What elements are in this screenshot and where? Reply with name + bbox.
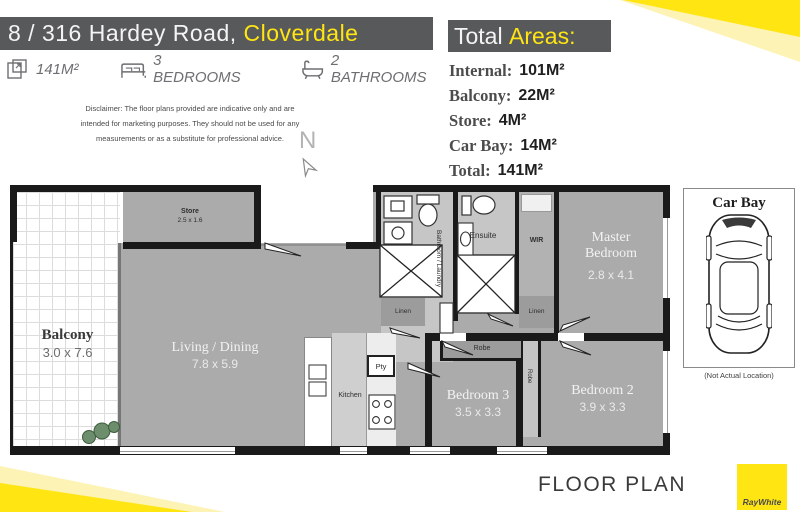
master-name: Master Bedroom: [568, 230, 654, 262]
area-label: Total:: [449, 161, 491, 181]
plan-fixtures: [10, 185, 682, 467]
bed2-dims: 3.9 x 3.3: [550, 400, 655, 414]
wir-name: WIR: [519, 237, 554, 244]
disclaimer-line-2: intended for marketing purposes. They sh…: [40, 116, 340, 131]
area-value: 141M²: [498, 162, 543, 180]
disclaimer-line-1: Disclaimer: The floor plans provided are…: [40, 101, 340, 116]
living-name: Living / Dining: [160, 340, 270, 356]
page-title: 8 / 316 Hardey Road, Cloverdale: [0, 17, 433, 50]
area-value: 101M²: [519, 62, 564, 80]
bed3-name: Bedroom 3: [433, 388, 523, 404]
kitchen-name: Kitchen: [335, 392, 365, 399]
washer-icon: [384, 196, 412, 244]
balcony-trees: [83, 422, 120, 444]
living-dims: 7.8 x 5.9: [160, 357, 270, 371]
bathroom-door: [408, 363, 440, 377]
shower-bathroom: [380, 245, 442, 297]
area-value: 22M²: [518, 87, 554, 105]
linen-door: [390, 328, 420, 338]
total-areas-list: Internal: 101M² Balcony: 22M² Store: 4M²…: [449, 58, 669, 183]
total-areas-title: Total Areas:: [448, 20, 611, 52]
bed2-name: Bedroom 2: [550, 383, 655, 399]
sink-icon: [309, 365, 326, 396]
feature-bathrooms: 2 BATHROOMS: [300, 52, 436, 86]
floor-plan-flyer: 8 / 316 Hardey Road, Cloverdale 141M² 3 …: [0, 0, 800, 512]
floor-plan: Robe Robe Pty: [10, 185, 682, 467]
store-name: Store: [150, 208, 230, 215]
raywhite-logo-text: RayWhite: [743, 497, 782, 510]
stove-icon: [369, 395, 395, 429]
area-row-store: Store: 4M²: [449, 108, 669, 133]
disclaimer-text: Disclaimer: The floor plans provided are…: [40, 101, 340, 146]
floor-plan-caption: FLOOR PLAN: [538, 473, 686, 497]
bed3-dims: 3.5 x 3.3: [433, 405, 523, 419]
area-label: Store:: [449, 111, 492, 131]
feature-area: 141M²: [6, 58, 79, 80]
master-door: [560, 317, 590, 331]
total-areas-title-yellow: Areas:: [509, 23, 575, 50]
north-label: N: [299, 127, 316, 155]
total-areas-title-white: Total: [454, 23, 509, 50]
car-bay-title: Car Bay: [684, 195, 794, 212]
bed2-door: [560, 341, 591, 355]
bed3-door: [442, 341, 473, 355]
area-row-internal: Internal: 101M²: [449, 58, 669, 83]
master-dims: 2.8 x 4.1: [568, 268, 654, 282]
raywhite-logo: RayWhite: [737, 464, 787, 510]
disclaimer-line-3: measurements or as a substitute for prof…: [40, 131, 340, 146]
vanity-bathroom-icon: [440, 303, 453, 333]
car-bay-panel: Car Bay: [683, 188, 795, 368]
area-label: Balcony:: [449, 86, 511, 106]
bathroom-name: Bathroom / Laundry: [435, 230, 442, 287]
area-row-balcony: Balcony: 22M²: [449, 83, 669, 108]
feature-bedrooms-label: 3 BEDROOMS: [153, 52, 250, 86]
area-value: 14M²: [520, 137, 556, 155]
address-text: 8 / 316 Hardey Road,: [8, 20, 244, 47]
feature-summary: 141M² 3 BEDROOMS 2 BATHROOMS: [6, 56, 436, 82]
car-bay-note: (Not Actual Location): [683, 371, 795, 380]
balcony-name: Balcony: [25, 327, 110, 344]
toilet-bathroom-icon: [417, 195, 439, 226]
area-icon: [6, 58, 30, 80]
car-icon: [706, 212, 772, 356]
north-arrow-icon: [297, 156, 319, 178]
shower-ensuite: [457, 255, 515, 313]
area-row-total: Total: 141M²: [449, 158, 669, 183]
store-dims: 2.5 x 1.6: [150, 217, 230, 224]
area-label: Car Bay:: [449, 136, 513, 156]
area-row-carbay: Car Bay: 14M²: [449, 133, 669, 158]
balcony-dims: 3.0 x 7.6: [25, 345, 110, 360]
feature-area-label: 141M²: [36, 61, 79, 78]
suburb-text: Cloverdale: [244, 20, 359, 47]
linen-bath-label: Linen: [381, 308, 425, 315]
ensuite-door: [488, 314, 513, 326]
toilet-ensuite-icon: [462, 196, 495, 215]
feature-bathrooms-label: 2 BATHROOMS: [331, 52, 436, 86]
bath-icon: [300, 59, 325, 80]
feature-bedrooms: 3 BEDROOMS: [120, 52, 250, 86]
linen-wir-label: Linen: [519, 308, 554, 315]
ensuite-name: Ensuite: [458, 231, 508, 240]
bed-icon: [120, 59, 147, 79]
area-label: Internal:: [449, 61, 512, 81]
area-value: 4M²: [499, 112, 527, 130]
